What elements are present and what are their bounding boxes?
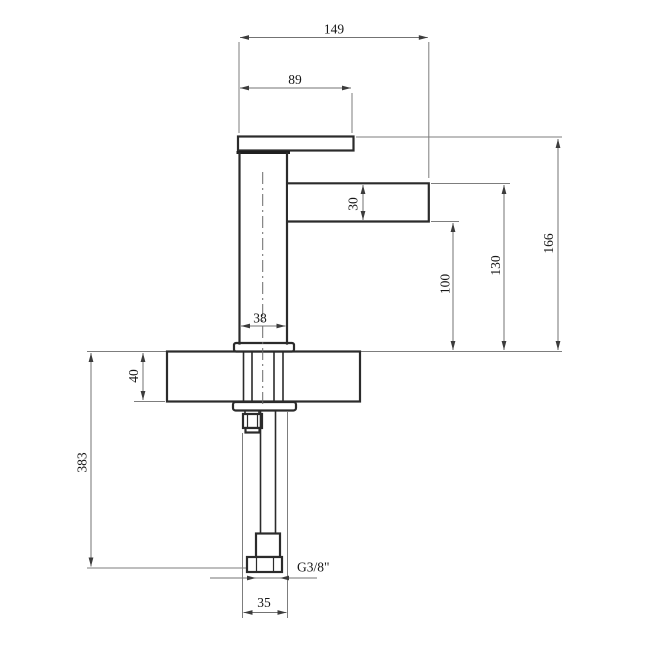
- dim-handle-length: [240, 88, 352, 133]
- connection-nut: [247, 557, 282, 572]
- hose-collar: [256, 534, 280, 558]
- lever-handle: [238, 137, 354, 151]
- label-body-width: 38: [253, 311, 267, 326]
- label-overall-height: 166: [541, 233, 556, 254]
- dim-overall-depth: [239, 38, 429, 179]
- label-handle-length: 89: [288, 72, 302, 87]
- base-flange: [234, 343, 294, 352]
- drawing-canvas: 149 89 30 166 130 100 38 40 383 G3/8" 35: [0, 0, 650, 650]
- label-deck-thickness: 40: [126, 369, 141, 383]
- under-deck-flange: [233, 402, 296, 411]
- dim-connection-width: [243, 412, 288, 618]
- label-connection-width: 35: [257, 595, 271, 610]
- technical-drawing: 149 89 30 166 130 100 38 40 383 G3/8" 35: [0, 0, 650, 650]
- dim-overall-height: [356, 137, 562, 350]
- dimension-labels: 149 89 30 166 130 100 38 40 383 G3/8" 35: [75, 22, 557, 611]
- dimension-lines: [87, 38, 562, 619]
- dim-thread-size: [210, 576, 317, 581]
- label-below-deck-length: 383: [75, 452, 90, 473]
- label-spout-section-height: 30: [346, 197, 361, 211]
- tap-outline: [167, 137, 429, 573]
- label-spout-top-height: 130: [488, 255, 503, 276]
- label-thread-size: G3/8": [297, 560, 330, 575]
- label-overall-depth: 149: [324, 22, 345, 37]
- label-spout-underside-height: 100: [438, 274, 453, 295]
- mounting-stud-nut: [243, 411, 262, 433]
- countertop: [167, 352, 360, 402]
